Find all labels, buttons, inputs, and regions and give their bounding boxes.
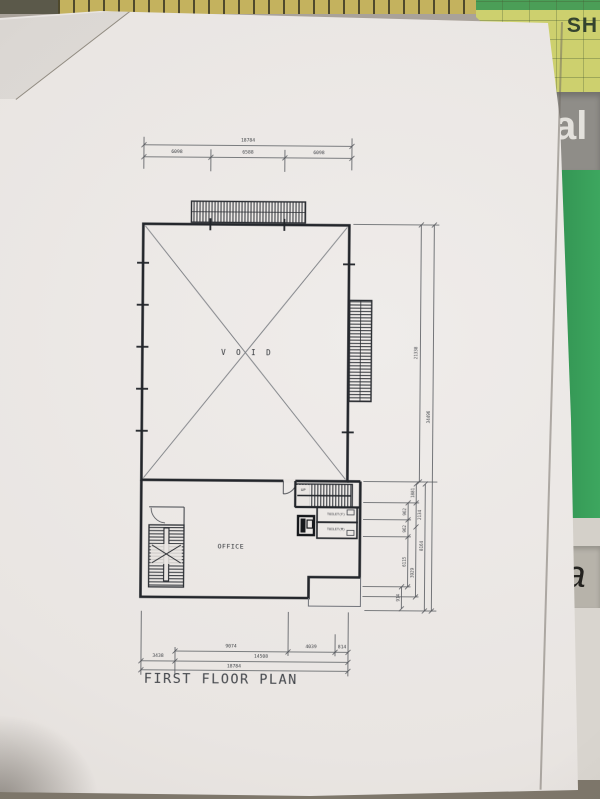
dim-right-void-height: 21338 bbox=[414, 347, 419, 360]
dim-top-seg1: 6098 bbox=[171, 149, 182, 155]
staircase-left bbox=[149, 507, 185, 587]
dim-top-seg2: 6588 bbox=[242, 150, 253, 156]
louvre-top bbox=[191, 201, 305, 223]
photo-of-floor-plan: SH al ia bbox=[0, 0, 600, 799]
floor-plan-drawing: V O I D OFFICE UP TOILET(F) TOILET(M) 18… bbox=[0, 0, 600, 799]
dim-right-d7: 3929 bbox=[410, 568, 415, 578]
office-label: OFFICE bbox=[218, 542, 245, 550]
toilet-f-label: TOILET(F) bbox=[327, 512, 345, 516]
plan-linework bbox=[0, 0, 600, 799]
dim-right-total-height: 34496 bbox=[426, 411, 431, 424]
dim-bottom-m2: 14508 bbox=[254, 654, 268, 660]
dim-bottom-u3: 814 bbox=[338, 645, 347, 651]
dim-top-total: 18784 bbox=[241, 138, 255, 144]
staircase-upper bbox=[295, 481, 360, 508]
dim-right-d8: 914 bbox=[396, 594, 401, 602]
dim-right-d5: 8164 bbox=[419, 541, 424, 551]
dim-bottom-u1: 9074 bbox=[225, 644, 236, 650]
toilet-m-label: TOILET(M) bbox=[327, 527, 345, 531]
lift-shaft bbox=[298, 516, 314, 535]
louvre-right bbox=[349, 300, 372, 401]
dim-top-seg3: 6098 bbox=[313, 150, 324, 156]
stair-up-label: UP bbox=[301, 488, 306, 493]
dim-right-d6: 6115 bbox=[402, 557, 407, 567]
dim-bottom-m1: 3438 bbox=[152, 653, 163, 659]
dimension-lines-bottom bbox=[138, 611, 350, 677]
dim-right-d1: 1881 bbox=[411, 488, 416, 498]
dim-right-d3: 2134 bbox=[418, 510, 423, 520]
dim-bottom-total: 18784 bbox=[227, 664, 241, 670]
dim-bottom-u2: 4039 bbox=[305, 644, 316, 650]
void-label: V O I D bbox=[221, 348, 274, 357]
plan-title: FIRST FLOOR PLAN bbox=[144, 671, 298, 688]
dim-right-d2: 962 bbox=[403, 508, 408, 516]
dim-right-d4: 962 bbox=[403, 525, 408, 533]
